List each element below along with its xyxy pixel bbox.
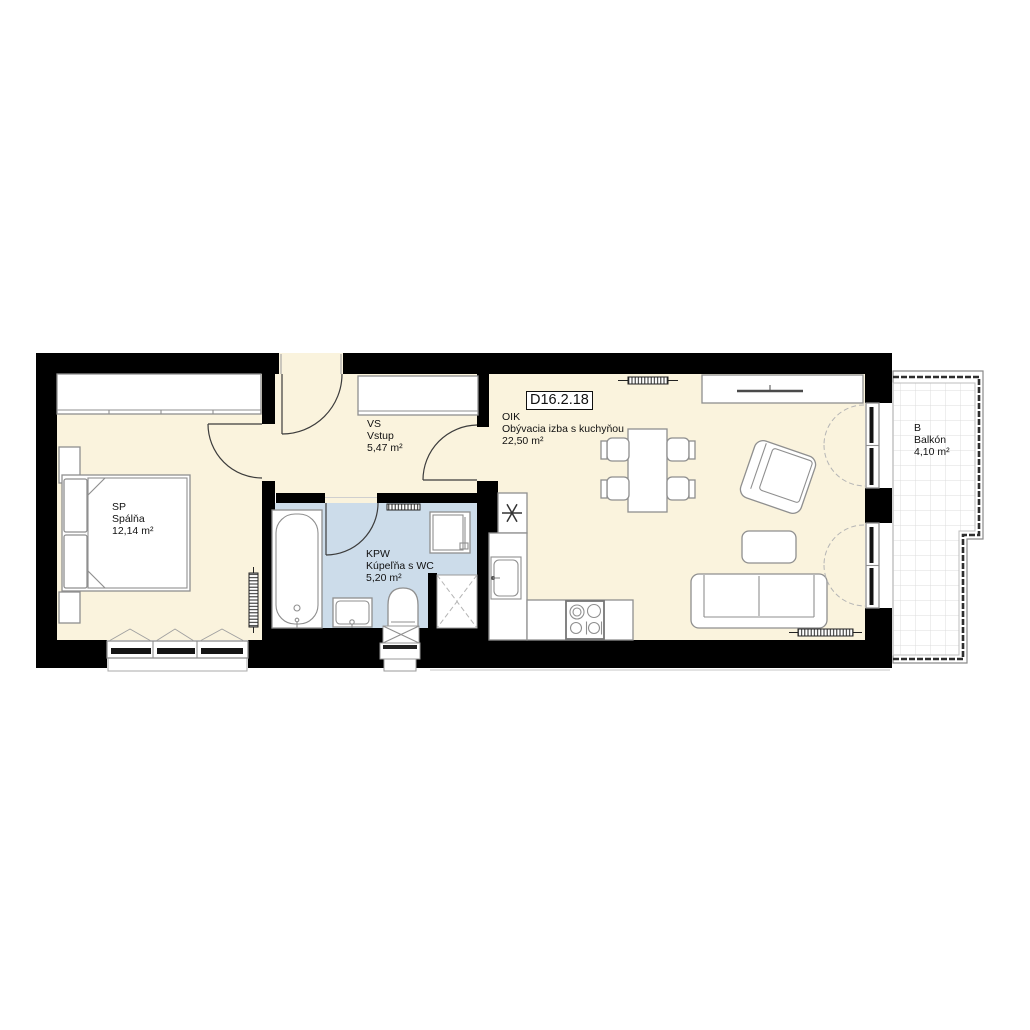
towel-radiator	[387, 504, 420, 510]
tv-cabinet	[702, 375, 863, 403]
room-label-living: OIK Obývacia izba s kuchyňou 22,50 m²	[502, 412, 624, 447]
balcony-door-bottom	[824, 523, 879, 608]
dining-chair	[667, 477, 695, 500]
room-area: 5,20 m²	[366, 573, 434, 585]
room-label-entry: VS Vstup 5,47 m²	[367, 419, 403, 454]
unit-label: D16.2.18	[526, 391, 593, 410]
dining-chair	[601, 477, 629, 500]
entrance-door	[281, 354, 342, 434]
room-name: Balkón	[914, 435, 950, 447]
washing-machine	[430, 512, 470, 553]
plan-linework	[0, 0, 1030, 1030]
installation-shaft	[437, 575, 477, 628]
bathroom-sink	[333, 598, 372, 628]
bedroom-door	[208, 424, 262, 478]
armchair	[738, 438, 818, 516]
room-label-balcony: B Balkón 4,10 m²	[914, 423, 950, 458]
toilet	[388, 588, 418, 629]
coffee-table	[742, 531, 796, 563]
radiator-living-bottom	[789, 629, 862, 636]
balcony-door-top	[824, 403, 879, 488]
room-name: Obývacia izba s kuchyňou	[502, 424, 624, 436]
entry-closet	[358, 376, 478, 415]
radiator-living-top	[618, 377, 678, 384]
dining-chair	[667, 438, 695, 461]
sofa	[691, 574, 827, 628]
floor-plan: D16.2.18 SP Spálňa 12,14 m² VS Vstup 5,4…	[0, 0, 1030, 1030]
radiator-bedroom	[249, 567, 258, 633]
room-area: 22,50 m²	[502, 436, 624, 448]
fridge	[498, 493, 527, 533]
room-name: Vstup	[367, 431, 403, 443]
wall-shaft-box	[380, 626, 420, 671]
bedroom-window	[107, 629, 248, 671]
nightstand	[59, 592, 80, 623]
dining-table	[628, 429, 667, 512]
room-area: 4,10 m²	[914, 447, 950, 459]
balcony	[893, 371, 983, 663]
bathtub	[272, 510, 322, 628]
room-label-bedroom: SP Spálňa 12,14 m²	[112, 502, 153, 537]
living-room-door	[423, 425, 477, 480]
room-name: Kúpeľňa s WC	[366, 561, 434, 573]
wardrobe	[57, 374, 261, 414]
stove	[566, 601, 604, 639]
room-area: 5,47 m²	[367, 443, 403, 455]
room-label-bathroom: KPW Kúpeľňa s WC 5,20 m²	[366, 549, 434, 584]
room-area: 12,14 m²	[112, 526, 153, 538]
room-name: Spálňa	[112, 514, 153, 526]
